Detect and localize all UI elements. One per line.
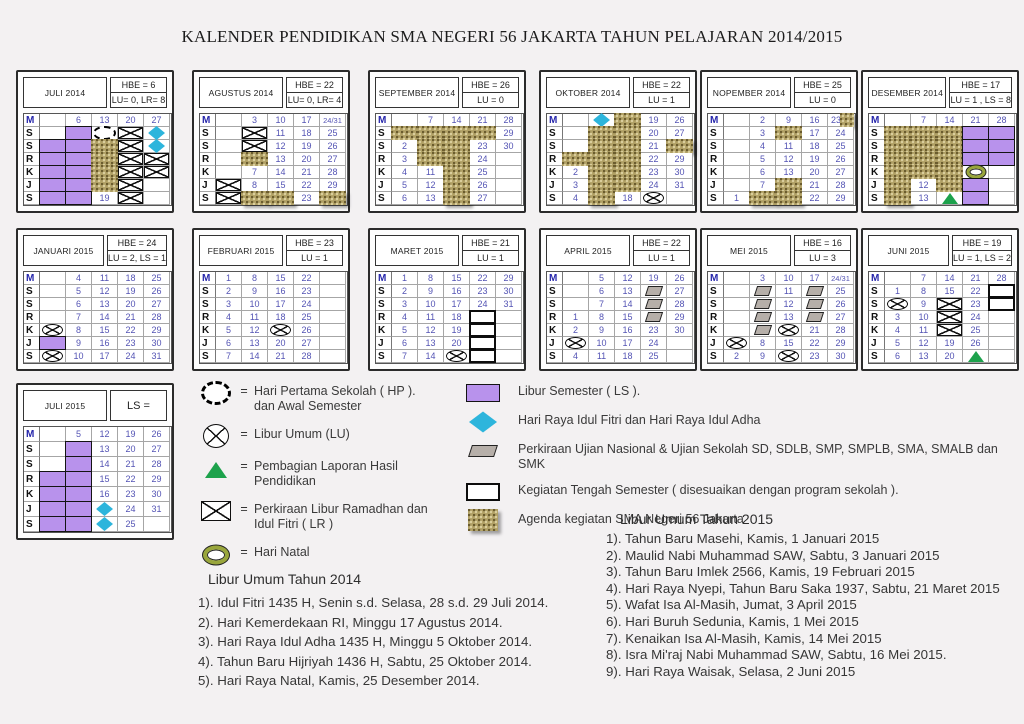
month-title: NOPEMBER 2014 (707, 77, 791, 108)
libur-semester-block (39, 165, 66, 179)
day-cell: 31 (496, 298, 522, 311)
day-cell: 4 (750, 140, 776, 153)
day-cell (667, 337, 693, 350)
day-cell: 29 (496, 127, 522, 140)
day-cell (885, 298, 911, 311)
day-cell: 1 (885, 285, 911, 298)
day-cell (724, 337, 750, 350)
day-cell (911, 166, 937, 179)
day-label: K (24, 324, 40, 337)
day-cell: 18 (802, 140, 828, 153)
day-cell: 23 (470, 285, 496, 298)
agenda-activity-texture (884, 178, 911, 192)
day-label: J (24, 337, 40, 350)
day-cell (40, 427, 66, 442)
day-cell (963, 350, 989, 363)
libur-semester-block (65, 191, 92, 205)
day-cell: 14 (615, 298, 641, 311)
libur-ramadhan-x-icon (937, 298, 962, 310)
idul-fitri-adha-diamond-icon (96, 517, 113, 531)
day-label: J (200, 337, 216, 350)
day-cell: 5 (392, 324, 418, 337)
legend-item: =Hari Natal (198, 545, 460, 564)
day-label: K (24, 487, 40, 502)
libur-semester-block (39, 139, 66, 153)
day-label: R (708, 153, 724, 166)
day-cell: 25 (828, 285, 854, 298)
day-cell: 10 (242, 298, 268, 311)
day-cell: 20 (641, 127, 667, 140)
day-cell (66, 517, 92, 532)
day-cell: 17 (802, 272, 828, 285)
pembagian-laporan-triangle-icon (205, 462, 227, 478)
day-cell: 25 (118, 517, 144, 532)
holiday-item: 5). Wafat Isa Al-Masih, Jumat, 3 April 2… (606, 597, 1024, 614)
agenda-activity-texture (884, 152, 911, 166)
day-cell (724, 272, 750, 285)
month-stat: LU = 1 (633, 92, 690, 108)
day-cell (470, 350, 496, 363)
day-cell: 29 (828, 337, 854, 350)
day-cell: 16 (444, 285, 470, 298)
hari-pertama-sekolah-icon (93, 126, 116, 140)
day-label: S (24, 140, 40, 153)
day-cell: 9 (911, 298, 937, 311)
ujian-parallelogram-icon (753, 312, 771, 322)
day-cell (216, 114, 242, 127)
day-cell: 22 (294, 179, 320, 192)
day-cell (563, 337, 589, 350)
month-stat: LU = 1 (462, 250, 519, 266)
day-cell: 4 (885, 324, 911, 337)
day-label: K (547, 166, 563, 179)
libur-semester-block (65, 165, 92, 179)
calendar-agustus-2014: AGUSTUS 2014HBE = 22LU= 0, LR= 4M3101724… (192, 70, 350, 213)
day-label: M (200, 114, 216, 127)
day-cell: 7 (66, 311, 92, 324)
day-cell (66, 442, 92, 457)
day-cell (885, 272, 911, 285)
day-cell: 2 (750, 114, 776, 127)
day-cell (496, 166, 522, 179)
day-cell: 15 (92, 472, 118, 487)
holiday-item: 7). Kenaikan Isa Al-Masih, Kamis, 14 Mei… (606, 631, 1024, 648)
agenda-activity-texture (443, 165, 470, 179)
day-cell (92, 517, 118, 532)
calendar-mei-2015: MEI 2015HBE = 16LU = 3M3101724/31S1125S1… (700, 228, 858, 371)
day-cell (242, 153, 268, 166)
day-cell (320, 272, 346, 285)
agenda-activity-texture (391, 126, 418, 140)
day-cell: 7 (242, 166, 268, 179)
day-cell: 4 (392, 166, 418, 179)
day-cell: 16 (92, 487, 118, 502)
month-stat: LU = 0 (794, 92, 851, 108)
month-title: APRIL 2015 (546, 235, 630, 266)
ujian-parallelogram-icon (753, 325, 771, 335)
day-cell: 13 (92, 442, 118, 457)
day-cell (563, 272, 589, 285)
agenda-activity-texture (614, 139, 641, 153)
day-cell: 22 (802, 192, 828, 205)
month-stat: LS = (110, 390, 167, 421)
day-cell: 30 (667, 324, 693, 337)
day-cell (444, 192, 470, 205)
day-label: S (708, 140, 724, 153)
day-label: S (547, 192, 563, 205)
day-cell: 20 (294, 153, 320, 166)
day-cell (641, 311, 667, 324)
day-cell: 27 (667, 285, 693, 298)
day-cell: 12 (911, 337, 937, 350)
calendar-nopember-2014: NOPEMBER 2014HBE = 25LU = 0M291623S31724… (700, 70, 858, 213)
day-cell (724, 140, 750, 153)
day-cell: 6 (216, 337, 242, 350)
day-cell (40, 285, 66, 298)
day-cell (216, 192, 242, 205)
day-label: S (869, 350, 885, 363)
day-cell: 28 (144, 457, 170, 472)
day-label: S (869, 285, 885, 298)
day-cell: 30 (144, 487, 170, 502)
day-label: J (376, 337, 392, 350)
day-label: J (376, 179, 392, 192)
month-stat: LU= 0, LR= 4 (286, 92, 343, 108)
hari-natal-ring-icon (966, 166, 985, 179)
month-stat: LU = 1 (633, 250, 690, 266)
agenda-activity-texture (614, 178, 641, 192)
day-label: S (200, 350, 216, 363)
day-cell (320, 285, 346, 298)
day-cell: 17 (294, 114, 320, 127)
day-cell (641, 298, 667, 311)
agenda-activity-texture (588, 191, 615, 205)
day-cell (563, 153, 589, 166)
day-label: S (24, 285, 40, 298)
day-cell (144, 140, 170, 153)
day-cell: 23 (118, 487, 144, 502)
day-label: S (869, 298, 885, 311)
day-cell: 4 (563, 192, 589, 205)
day-cell: 21 (802, 324, 828, 337)
day-cell (563, 114, 589, 127)
day-cell (118, 153, 144, 166)
day-label: S (24, 127, 40, 140)
month-title: AGUSTUS 2014 (199, 77, 283, 108)
day-cell (216, 153, 242, 166)
day-cell: 22 (802, 337, 828, 350)
day-cell: 5 (392, 179, 418, 192)
day-cell (724, 324, 750, 337)
day-label: K (547, 324, 563, 337)
day-cell: 23 (641, 324, 667, 337)
day-cell (989, 166, 1015, 179)
month-stat: LU = 1 , LS = 8 (949, 92, 1012, 108)
day-label: J (547, 179, 563, 192)
calendar-juni-2015: JUNI 2015HBE = 19LU = 1, LS = 2M7142128S… (861, 228, 1019, 371)
day-cell: 13 (615, 285, 641, 298)
day-cell: 25 (470, 166, 496, 179)
day-label: S (376, 140, 392, 153)
day-cell: 5 (66, 427, 92, 442)
agenda-activity-texture (267, 191, 294, 205)
day-label: S (708, 298, 724, 311)
agenda-activity-texture (588, 152, 615, 166)
day-label: S (547, 127, 563, 140)
day-cell: 24 (118, 350, 144, 363)
day-cell (392, 127, 418, 140)
day-cell (40, 502, 66, 517)
day-cell (776, 127, 802, 140)
agenda-activity-texture (91, 178, 118, 192)
day-cell (750, 311, 776, 324)
day-cell: 5 (589, 272, 615, 285)
day-cell: 12 (776, 153, 802, 166)
libur-umum-icon (778, 324, 799, 336)
idul-fitri-adha-diamond-icon (148, 139, 165, 153)
day-cell: 26 (963, 337, 989, 350)
day-label: S (708, 350, 724, 363)
day-cell: 20 (118, 114, 144, 127)
agenda-activity-texture (910, 152, 937, 166)
day-cell: 24 (641, 337, 667, 350)
agenda-activity-texture (588, 139, 615, 153)
agenda-activity-texture (319, 191, 346, 205)
agenda-activity-texture (91, 152, 118, 166)
day-label: S (708, 127, 724, 140)
agenda-activity-texture (443, 126, 470, 140)
day-cell: 21 (294, 166, 320, 179)
day-cell: 21 (268, 350, 294, 363)
ujian-parallelogram-icon (805, 286, 823, 296)
agenda-activity-texture (910, 126, 937, 140)
day-cell (989, 324, 1015, 337)
calendar-maret-2015: MARET 2015HBE = 21LU = 1M18152229S291623… (368, 228, 526, 371)
month-stat: LU = 1, LS = 2 (952, 250, 1012, 266)
calendar-februari-2015: FEBRUARI 2015HBE = 23LU = 1M181522S29162… (192, 228, 350, 371)
agenda-activity-texture (910, 165, 937, 179)
day-cell (144, 153, 170, 166)
day-label: M (869, 114, 885, 127)
day-cell: 13 (418, 192, 444, 205)
libur-umum-icon (726, 337, 747, 349)
day-label: R (200, 153, 216, 166)
agenda-activity-texture (443, 152, 470, 166)
libur-semester-block (988, 126, 1015, 140)
day-cell: 13 (776, 311, 802, 324)
agenda-activity-texture (443, 139, 470, 153)
legend-label: Libur Umum (LU) (254, 427, 350, 442)
day-cell: 21 (963, 272, 989, 285)
day-cell (40, 192, 66, 205)
day-cell (667, 350, 693, 363)
day-cell: 11 (268, 127, 294, 140)
day-label: R (24, 311, 40, 324)
holiday-item: 1). Idul Fitri 1435 H, Senin s.d. Selasa… (198, 593, 628, 613)
day-label: S (547, 285, 563, 298)
day-cell (724, 166, 750, 179)
day-label: S (708, 192, 724, 205)
day-label: M (547, 114, 563, 127)
kegiatan-tengah-semester-box (988, 297, 1015, 311)
day-cell (40, 457, 66, 472)
day-cell: 21 (118, 457, 144, 472)
day-cell: 2 (563, 166, 589, 179)
day-cell: 14 (937, 272, 963, 285)
day-cell: 23 (118, 337, 144, 350)
ujian-parallelogram-icon (644, 312, 662, 322)
day-cell: 11 (92, 272, 118, 285)
day-label: S (708, 285, 724, 298)
day-cell: 2 (563, 324, 589, 337)
day-cell: 15 (776, 337, 802, 350)
day-cell (216, 179, 242, 192)
day-cell (724, 285, 750, 298)
day-label: S (24, 298, 40, 311)
day-cell (963, 192, 989, 205)
day-cell (989, 192, 1015, 205)
day-cell: 4 (563, 350, 589, 363)
day-cell: 28 (667, 298, 693, 311)
day-cell: 11 (418, 311, 444, 324)
day-label: R (24, 472, 40, 487)
day-cell: 28 (294, 350, 320, 363)
holiday-item: 3). Tahun Baru Imlek 2566, Kamis, 19 Feb… (606, 564, 1024, 581)
day-cell: 6 (885, 350, 911, 363)
day-label: R (708, 311, 724, 324)
holidays-2015-title: Libur Umum Tahun 2015 (606, 511, 1024, 527)
day-label: K (376, 324, 392, 337)
day-cell (40, 298, 66, 311)
hari-natal-ring-icon (203, 545, 229, 564)
day-cell: 26 (828, 298, 854, 311)
day-cell: 23 (641, 166, 667, 179)
day-cell: 18 (268, 311, 294, 324)
day-cell: 10 (66, 350, 92, 363)
legend-label: Hari Pertama Sekolah ( HP ).dan Awal Sem… (254, 384, 416, 414)
day-cell (750, 285, 776, 298)
day-cell (40, 472, 66, 487)
libur-semester-block (988, 152, 1015, 166)
day-cell (216, 140, 242, 153)
libur-semester-block (65, 178, 92, 192)
libur-umum-icon (270, 324, 291, 336)
libur-umum-icon (203, 424, 229, 448)
day-cell (496, 192, 522, 205)
day-label: K (708, 324, 724, 337)
day-cell: 5 (66, 285, 92, 298)
day-cell (724, 298, 750, 311)
libur-semester-block (65, 139, 92, 153)
agenda-activity-texture (936, 139, 963, 153)
legend-label: Perkiraan Libur Ramadhan danIdul Fitri (… (254, 502, 428, 532)
legend-item: =Hari Pertama Sekolah ( HP ).dan Awal Se… (198, 384, 460, 414)
day-cell: 8 (589, 311, 615, 324)
day-label: J (547, 337, 563, 350)
holiday-item: 6). Hari Buruh Sedunia, Kamis, 1 Mei 201… (606, 614, 1024, 631)
libur-semester-block (988, 139, 1015, 153)
day-label: M (24, 114, 40, 127)
day-cell: 2 (724, 350, 750, 363)
day-cell: 11 (776, 285, 802, 298)
day-cell (589, 192, 615, 205)
agenda-activity-texture (936, 152, 963, 166)
day-cell: 19 (92, 192, 118, 205)
day-cell: 13 (911, 350, 937, 363)
day-label: R (24, 153, 40, 166)
day-cell: 5 (216, 324, 242, 337)
day-label: M (376, 114, 392, 127)
hari-pertama-sekolah-icon (201, 381, 231, 405)
day-label: R (547, 311, 563, 324)
day-cell (118, 140, 144, 153)
day-cell: 1 (216, 272, 242, 285)
day-cell: 10 (418, 298, 444, 311)
day-cell: 26 (470, 179, 496, 192)
day-cell: 21 (802, 179, 828, 192)
page-title: KALENDER PENDIDIKAN SMA NEGERI 56 JAKART… (0, 27, 1024, 47)
day-cell: 19 (118, 427, 144, 442)
day-cell: 17 (92, 350, 118, 363)
day-cell (444, 350, 470, 363)
day-cell: 4 (216, 311, 242, 324)
day-cell (242, 192, 268, 205)
day-cell: 31 (667, 179, 693, 192)
holiday-item: 4). Hari Raya Nyepi, Tahun Baru Saka 193… (606, 581, 1024, 598)
ujian-parallelogram-icon (753, 299, 771, 309)
day-label: S (24, 457, 40, 472)
month-stat: LU = 3 (794, 250, 851, 266)
day-cell (724, 114, 750, 127)
agenda-activity-texture (417, 126, 444, 140)
day-cell: 30 (828, 350, 854, 363)
day-cell (802, 311, 828, 324)
day-cell: 2 (392, 140, 418, 153)
libur-umum-icon (778, 350, 799, 362)
day-cell: 14 (92, 311, 118, 324)
day-cell: 8 (418, 272, 444, 285)
day-label: M (24, 272, 40, 285)
libur-umum-icon (887, 298, 908, 310)
day-cell (989, 179, 1015, 192)
libur-ramadhan-x-icon (118, 166, 143, 178)
holidays-2014-list: Libur Umum Tahun 2014 1). Idul Fitri 143… (198, 571, 628, 691)
holidays-2015-list: Libur Umum Tahun 2015 1). Tahun Baru Mas… (606, 511, 1024, 680)
day-label: K (869, 166, 885, 179)
day-cell: 12 (911, 179, 937, 192)
legend-label: Libur Semester ( LS ). (504, 384, 640, 399)
day-label: S (376, 350, 392, 363)
day-cell: 29 (667, 311, 693, 324)
day-cell: 6 (392, 337, 418, 350)
agenda-activity-texture (588, 178, 615, 192)
day-cell: 30 (144, 337, 170, 350)
day-cell: 26 (144, 285, 170, 298)
day-cell (118, 192, 144, 205)
month-title: OKTOBER 2014 (546, 77, 630, 108)
day-cell: 9 (589, 324, 615, 337)
day-label: J (869, 337, 885, 350)
day-cell: 30 (496, 140, 522, 153)
libur-semester-block (65, 501, 92, 517)
day-cell: 9 (418, 285, 444, 298)
libur-umum-icon (565, 337, 586, 349)
day-cell: 28 (496, 114, 522, 127)
day-cell: 14 (92, 457, 118, 472)
day-cell: 20 (444, 337, 470, 350)
agenda-activity-texture (910, 139, 937, 153)
kegiatan-tengah-semester-box (466, 483, 500, 501)
